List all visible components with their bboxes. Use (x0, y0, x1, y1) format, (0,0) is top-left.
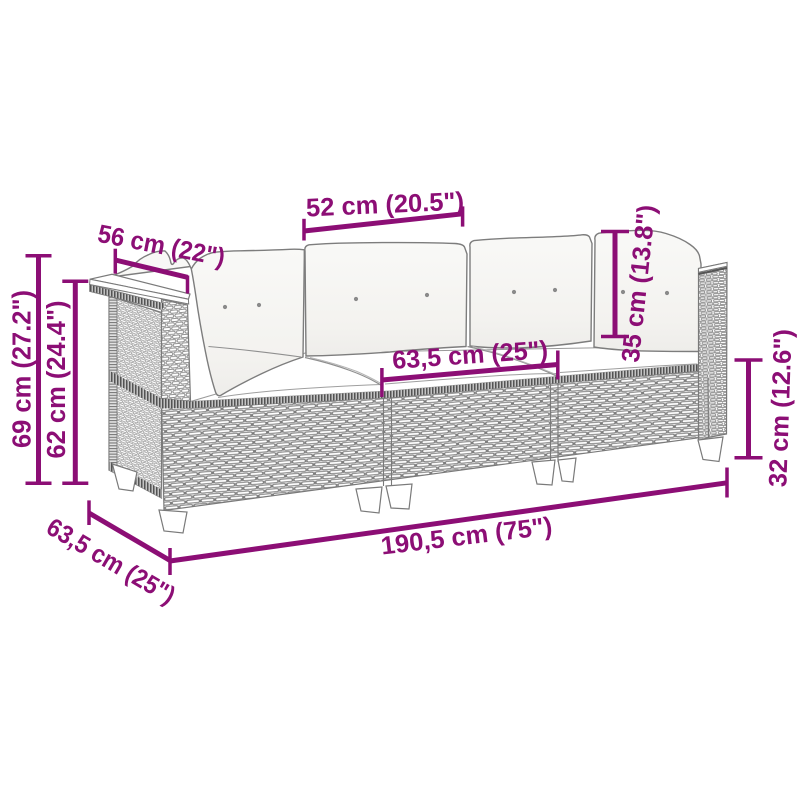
svg-text:62 cm (24.4"): 62 cm (24.4") (43, 300, 71, 458)
svg-text:32 cm (12.6"): 32 cm (12.6") (764, 329, 798, 488)
svg-text:69 cm (27.2"): 69 cm (27.2") (9, 290, 37, 448)
